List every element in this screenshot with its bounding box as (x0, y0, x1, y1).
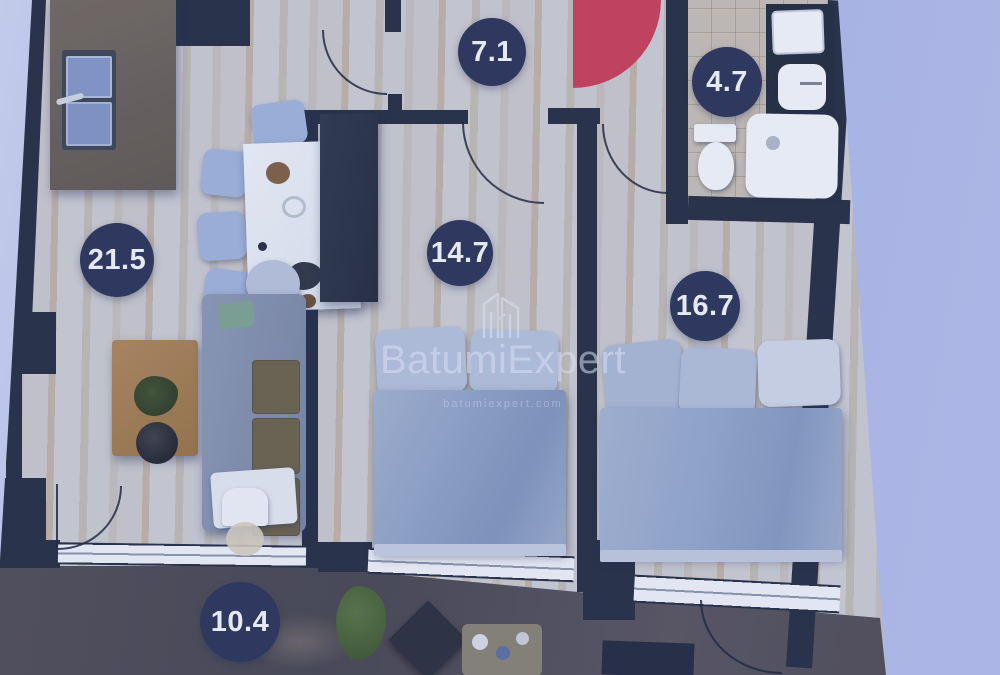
area-value: 10.4 (211, 606, 269, 639)
sofa-cushion (252, 360, 300, 414)
bed2-pillow (757, 339, 841, 408)
plan-content: 7.1 4.7 21.5 14.7 16.7 10.4 (0, 0, 1000, 675)
apartment-floorplan: 7.1 4.7 21.5 14.7 16.7 10.4 (0, 0, 1000, 675)
bed2-foot-edge (600, 550, 842, 562)
tray-cup (496, 646, 510, 660)
wall-left-pier-2 (0, 478, 46, 568)
area-badge-living-room: 21.5 (80, 223, 154, 297)
round-rug (226, 522, 264, 556)
table-dot (258, 242, 267, 251)
wall-top-left-chunk (166, 0, 250, 46)
wall-window-pier (318, 542, 372, 572)
bathroom-sink (778, 64, 826, 110)
toilet-bowl (698, 142, 734, 190)
table-ring-decor (282, 196, 306, 218)
area-value: 21.5 (88, 244, 146, 277)
balcony-door-leaf (56, 484, 58, 548)
bed1-pillow (374, 326, 467, 397)
bed2-blanket (600, 408, 842, 556)
bed1-blanket (374, 390, 566, 552)
sofa-cushion (252, 418, 300, 474)
side-chair (222, 488, 268, 526)
kitchen-appliance-glass-bottom (66, 102, 112, 146)
area-value: 14.7 (431, 237, 489, 270)
wall-bedroom-divider (577, 108, 597, 592)
tray-cup (472, 634, 488, 650)
tray-cup (516, 632, 529, 645)
wall-bathroom-west (666, 0, 688, 224)
bed2-pillow (600, 338, 687, 418)
sofa-green-cushion (217, 300, 256, 330)
dining-chair (196, 210, 247, 261)
bed1-pillow (469, 328, 559, 395)
area-value: 7.1 (471, 36, 513, 69)
wall-left-pier-1 (8, 312, 56, 374)
washing-machine (771, 9, 825, 55)
shower-drain (766, 136, 780, 150)
sink-faucet (800, 82, 822, 85)
wall-hall-stub-top (385, 0, 401, 32)
toilet-tank (694, 124, 736, 142)
kitchen-appliance-glass-top (66, 56, 112, 98)
table-plate (266, 162, 290, 184)
balcony-bench (601, 640, 694, 675)
wardrobe (320, 114, 378, 302)
area-badge-balcony: 10.4 (200, 582, 280, 662)
area-badge-hallway: 7.1 (458, 18, 526, 86)
bed1-foot-edge (374, 544, 566, 556)
coffee-table-tray (136, 422, 178, 464)
area-badge-bedroom-1: 14.7 (427, 220, 493, 286)
shower-tray (745, 113, 838, 199)
area-value: 4.7 (706, 66, 748, 99)
wall-left-thin (6, 368, 22, 488)
floorplan-photo: 7.1 4.7 21.5 14.7 16.7 10.4 (0, 0, 1000, 675)
area-badge-bathroom: 4.7 (692, 47, 762, 117)
area-badge-bedroom-2: 16.7 (670, 271, 740, 341)
area-value: 16.7 (676, 290, 734, 323)
living-room-window (58, 542, 306, 567)
